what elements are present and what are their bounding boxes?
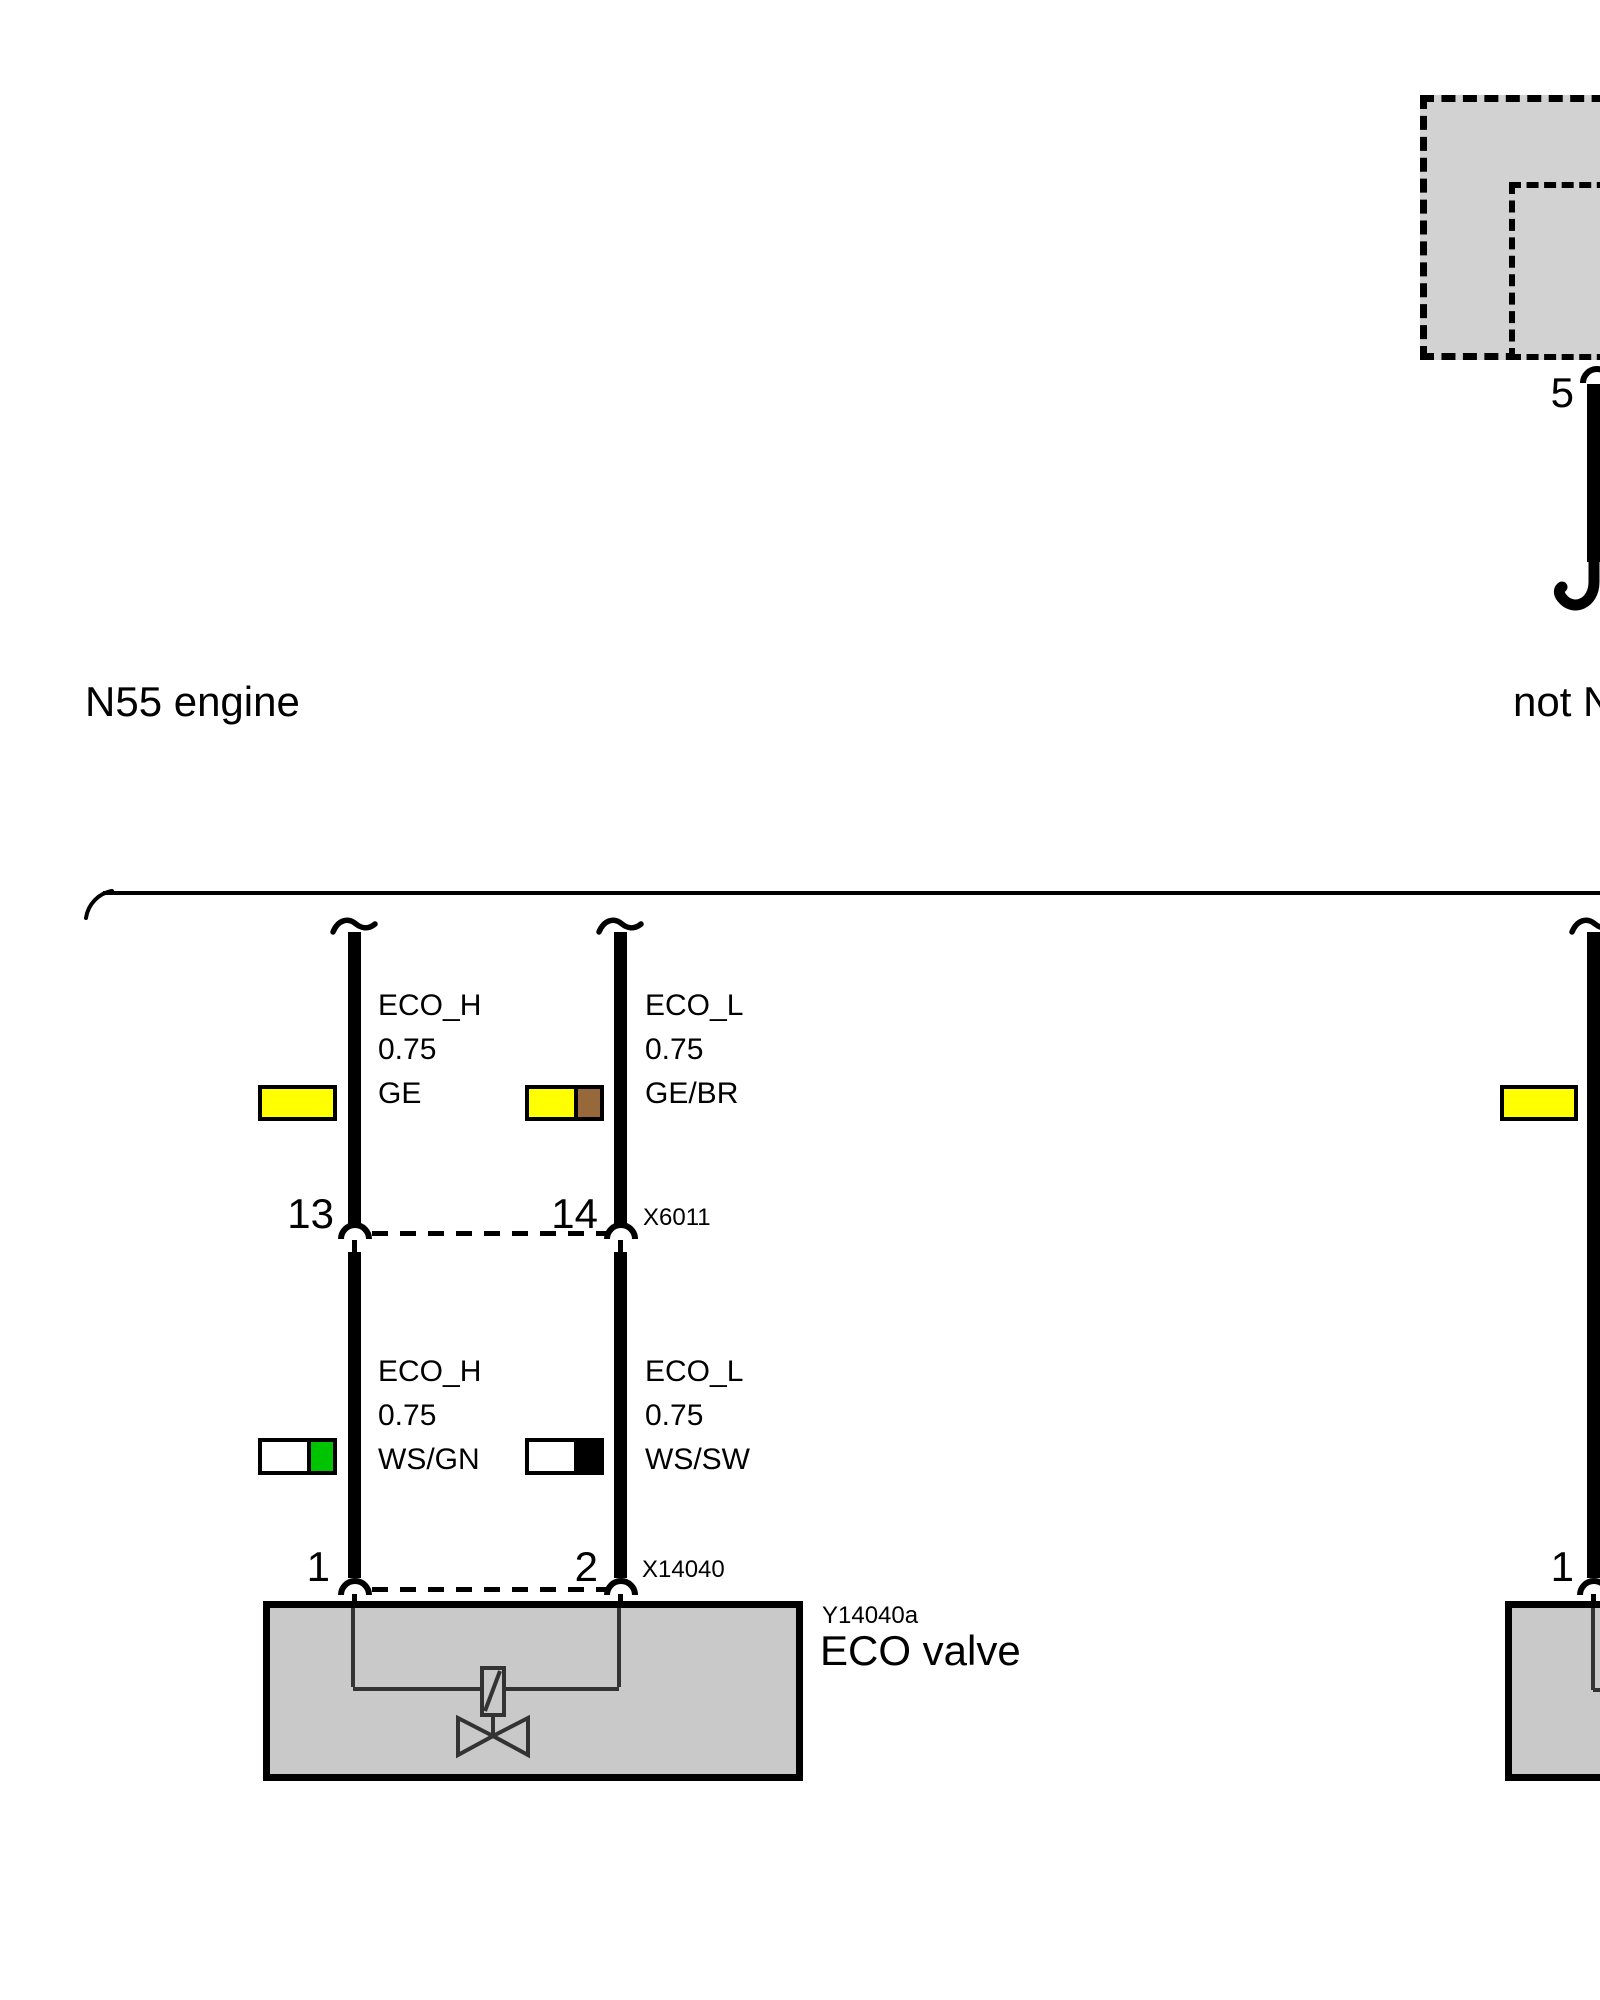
connector-dashed-link: [372, 1587, 606, 1592]
caption-engine-left: N55 engine: [85, 681, 300, 723]
swatch-color-main: [529, 1089, 574, 1117]
swatch-color-stripe: [574, 1442, 600, 1471]
wire-eco-h-lower: [348, 1252, 361, 1578]
wire-color-code: WS/GN: [378, 1438, 481, 1482]
caption-engine-right: not N55 engine: [1513, 681, 1600, 723]
wire-color-code: WS/SW: [645, 1438, 750, 1482]
pin-socket-icon: [604, 1576, 638, 1596]
wire-eco-l-lower: [614, 1252, 627, 1578]
signal-name: ECO_H: [378, 984, 481, 1028]
pin-number-5: 5: [1524, 372, 1574, 414]
pin-socket-icon: [338, 1220, 372, 1240]
color-swatch-right-branch: [1500, 1085, 1578, 1121]
pin-socket-icon: [604, 1220, 638, 1240]
group-bracket-line: [103, 891, 1600, 895]
pin-socket-icon: [1577, 1576, 1600, 1596]
pin-number-1: 1: [280, 1546, 330, 1588]
signal-name: ECO_H: [378, 1350, 481, 1394]
pin-socket-icon: [1580, 364, 1600, 384]
component-id: Y14040a: [822, 1604, 918, 1628]
component-name: ECO valve: [820, 1630, 1021, 1672]
wire-break-hook-icon: [1553, 556, 1600, 620]
swatch-color-main: [262, 1442, 307, 1471]
wire-color-code: GE: [378, 1072, 481, 1116]
eco-valve-symbol: [263, 1601, 803, 1781]
swatch-color-main: [529, 1442, 574, 1471]
pin-stub: [618, 1240, 623, 1252]
wire-from-control-unit: [1587, 384, 1600, 562]
color-swatch-ws-sw: [525, 1438, 604, 1475]
pin-stub: [352, 1240, 357, 1252]
pin-socket-icon: [338, 1576, 372, 1596]
wire-eco-l-upper: [614, 932, 627, 1226]
swatch-color-main: [262, 1089, 333, 1117]
connector-id-x6011: X6011: [643, 1206, 711, 1230]
color-swatch-ge: [258, 1085, 337, 1121]
pin-number-14: 14: [538, 1193, 598, 1235]
swatch-color-stripe: [574, 1089, 600, 1117]
wire-label-lower-left: ECO_H 0.75 WS/GN: [378, 1350, 481, 1482]
control-unit-inner-box: [1509, 182, 1600, 360]
group-bracket-corner: [83, 889, 113, 919]
swatch-color-stripe: [307, 1442, 333, 1471]
wire-right-branch: [1587, 932, 1600, 1578]
color-swatch-ws-gn: [258, 1438, 337, 1475]
wire-gauge: 0.75: [378, 1394, 481, 1438]
color-swatch-ge-br: [525, 1085, 604, 1121]
swatch-color-main: [1504, 1089, 1574, 1117]
wiring-diagram-canvas: 5 N55 engine not N55 engine ECO_H 0.75 G…: [0, 0, 1600, 2000]
wire-gauge: 0.75: [645, 1028, 743, 1072]
pin-number-2: 2: [548, 1546, 598, 1588]
connector-id-x14040: X14040: [642, 1558, 725, 1582]
signal-name: ECO_L: [645, 984, 743, 1028]
wire-color-code: GE/BR: [645, 1072, 743, 1116]
wire-gauge: 0.75: [645, 1394, 750, 1438]
pin-number-13: 13: [274, 1193, 334, 1235]
connector-dashed-link: [372, 1231, 606, 1236]
eco-valve-symbol-right: [1505, 1601, 1600, 1781]
wire-label-upper-left: ECO_H 0.75 GE: [378, 984, 481, 1116]
signal-name: ECO_L: [645, 1350, 750, 1394]
wire-gauge: 0.75: [378, 1028, 481, 1072]
wire-label-upper-right: ECO_L 0.75 GE/BR: [645, 984, 743, 1116]
wire-eco-h-upper: [348, 932, 361, 1226]
pin-number-right-1: 1: [1524, 1546, 1574, 1588]
wire-label-lower-right: ECO_L 0.75 WS/SW: [645, 1350, 750, 1482]
